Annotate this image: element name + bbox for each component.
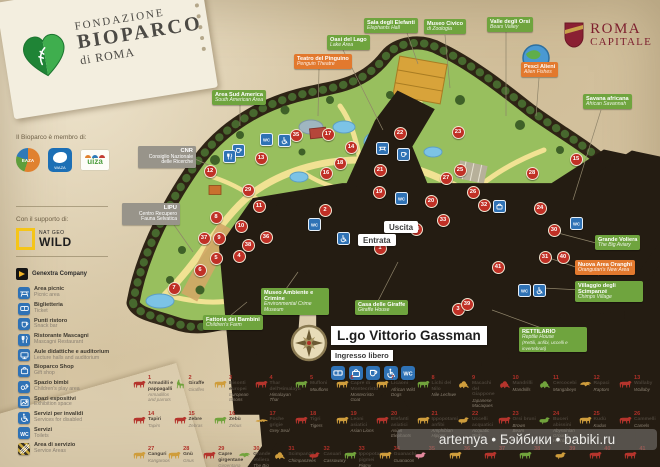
area-label: RETTILARIO Reptile House (Rettili, anfib…: [519, 327, 587, 352]
map-marker: 32: [478, 199, 491, 212]
map-marker: 21: [374, 164, 387, 177]
map-marker: 41: [492, 261, 505, 274]
bioparco-map-page: WC: [0, 0, 660, 467]
animal-icon: [214, 415, 227, 425]
map-marker: 36: [260, 231, 273, 244]
animal-icon: [417, 415, 430, 425]
map-marker: 39: [461, 298, 474, 311]
map-facility-icon: [260, 133, 273, 146]
area-label: Oasi del Lago Lake Area: [327, 35, 370, 50]
animal-icon: [214, 379, 227, 389]
map-facility-icon: [308, 218, 321, 231]
animal-legend-entry: 6 Capre di Montecristo Montecristo Goat: [336, 375, 377, 408]
animal-legend-entry: 5 Mufloni Mouflons: [295, 375, 336, 408]
area-label: Grande Voliera The Big Aviary: [595, 235, 640, 250]
animal-icon: [538, 379, 551, 389]
animal-icon: [624, 450, 637, 460]
animal-legend-entry: 7 Licaoni African Wild Dogs: [376, 375, 417, 408]
animal-icon: [449, 450, 462, 460]
animal-icon: [336, 415, 349, 425]
animal-icon: [255, 415, 268, 425]
map-marker: 12: [204, 165, 217, 178]
map-marker: 28: [526, 167, 539, 180]
animal-legend-entry: 1 Armadilli e pappagalli Armadillos and …: [133, 375, 174, 408]
animal-legend-entry: 32 Casuari Cassowary: [308, 446, 343, 467]
map-facility-icon: [376, 142, 389, 155]
area-label: Casa delle Giraffe Giraffe House: [355, 300, 408, 315]
map-marker: 38: [242, 239, 255, 252]
animal-legend-entry: 27 Canguri Kangaroos: [133, 446, 168, 467]
animal-legend-entry: 11 Cercocebi Mangabeys: [538, 375, 579, 408]
animal-icon: [457, 379, 470, 389]
map-marker: 13: [255, 152, 268, 165]
map-marker: 22: [394, 127, 407, 140]
map-marker: 20: [425, 195, 438, 208]
map-facility-icon: [493, 200, 506, 213]
map-facility-icon: [223, 150, 236, 163]
animal-icon: [498, 379, 511, 389]
animal-legend-entry: 28 Gnù Gnus: [168, 446, 203, 467]
map-marker: 5: [210, 252, 223, 265]
animal-icon: [498, 415, 511, 425]
animal-icon: [538, 415, 551, 425]
map-facility-icon: [533, 284, 546, 297]
area-label: Museo Civico di Zoologia: [424, 19, 466, 34]
animal-icon: [238, 450, 251, 460]
area-label: Pesci Alieni Alien Fishes: [521, 62, 558, 77]
animal-icon: [344, 450, 357, 460]
map-marker: 26: [467, 186, 480, 199]
area-label: Museo Ambiente e Crimine Environmental C…: [261, 288, 329, 315]
animal-icon: [484, 450, 497, 460]
animal-legend-entry: 13 Wallaby Wallaby: [619, 375, 660, 408]
animal-legend-entry: 30 Grande Voliera The Big Aviary: [238, 446, 273, 467]
area-label: Valle degli Orsi Bears Valley: [487, 17, 533, 32]
map-marker: 27: [440, 172, 453, 185]
animal-legend-entry: 29 Capre girgentane Girgentana Goat: [203, 446, 238, 467]
area-label: Sala degli Elefanti Elephants Hall: [364, 18, 418, 33]
map-marker: 16: [320, 167, 333, 180]
animal-icon: [174, 379, 187, 389]
animal-legend-entry: 4 Thar dell'Himalaya Himalayan Thar: [255, 375, 296, 408]
institution-label: LIPU Centro Recupero Fauna Selvatica: [122, 203, 180, 225]
entrance-label: Entrata: [358, 234, 396, 246]
animal-legend-entry: 18 Tigri Tigers: [295, 411, 336, 443]
animal-icon: [579, 379, 592, 389]
animal-legend-entry: 9 Macachi del Giappone Japanese Macaques: [457, 375, 498, 408]
area-label: Area Sud America South American Area: [212, 90, 266, 105]
map-marker: 40: [557, 251, 570, 264]
map-marker: 7: [168, 282, 181, 295]
map-marker: 31: [539, 251, 552, 264]
map-facility-icon: [397, 148, 410, 161]
map-marker: 37: [198, 232, 211, 245]
map-marker: 25: [454, 164, 467, 177]
animal-icon: [336, 379, 349, 389]
animal-legend-entry: 3 Bisonti europei European Bisons: [214, 375, 255, 408]
map-marker: 15: [570, 153, 583, 166]
animal-legend-entry: 33 Ippopotami pigmei Pigmy Hippos: [344, 446, 379, 467]
animal-icon: [379, 450, 392, 460]
map-marker: 4: [233, 250, 246, 263]
animal-legend: 1 Armadilli e pappagalli Armadillos and …: [133, 375, 660, 467]
animal-icon: [133, 415, 146, 425]
animal-icon: [457, 415, 470, 425]
animal-legend-entry: 31 Scimpanzé Chimpanzees: [273, 446, 308, 467]
animal-icon: [295, 415, 308, 425]
animal-legend-entry: 10 Mandrilli Mandrills: [498, 375, 539, 408]
animal-icon: [133, 379, 146, 389]
map-marker: 6: [194, 264, 207, 277]
animal-icon: [619, 379, 632, 389]
exit-label: Uscita: [384, 221, 418, 233]
animal-icon: [168, 450, 181, 460]
map-marker: 9: [213, 232, 226, 245]
map-marker: 23: [452, 126, 465, 139]
animal-icon: [133, 450, 146, 460]
map-marker: 18: [334, 157, 347, 170]
animal-icon: [579, 415, 592, 425]
map-marker: 24: [534, 202, 547, 215]
map-marker: 8: [210, 211, 223, 224]
watermark: artemya • Бэйбики • babiki.ru: [397, 429, 657, 450]
map-marker: 35: [290, 129, 303, 142]
map-marker: 11: [253, 200, 266, 213]
area-label: Villaggio degli Scimpanzé Chimps Village: [575, 281, 643, 302]
animal-legend-entry: 15 Zebre Zebras: [174, 411, 215, 443]
animal-icon: [376, 415, 389, 425]
map-facility-icon: [278, 134, 291, 147]
entrance-sign: L.go Vittorio Gassman Ingresso libero: [331, 326, 491, 380]
animal-icon: [589, 450, 602, 460]
animal-legend-entry: 12 Rapaci Raptors: [579, 375, 620, 408]
animal-icon: [554, 450, 567, 460]
map-marker: 2: [319, 204, 332, 217]
animal-icon: [308, 450, 321, 460]
map-facility-icon: [395, 192, 408, 205]
institution-label: CNR Consiglio Nazionale delle Ricerche: [138, 146, 196, 168]
area-label: Savana africana African Savannah: [583, 94, 632, 109]
area-label: Nuova Area Oranghi Orangutan's New Area: [575, 260, 635, 275]
map-marker: 33: [437, 214, 450, 227]
animal-legend-entry: 16 Zebù Zebus: [214, 411, 255, 443]
map-facility-icon: [570, 217, 583, 230]
map-marker: 30: [548, 224, 561, 237]
area-label: Fattoria dei Bambini Children's Farm: [203, 315, 263, 330]
area-label: Teatro del Pinguino Penguin Theatre: [294, 54, 352, 69]
animal-legend-row-1: 1 Armadilli e pappagalli Armadillos and …: [133, 375, 660, 408]
animal-icon: [255, 379, 268, 389]
animal-icon: [273, 450, 286, 460]
animal-icon: [376, 379, 389, 389]
animal-icon: [174, 415, 187, 425]
animal-icon: [295, 379, 308, 389]
animal-legend-entry: 17 Foche grigie Grey Seal: [255, 411, 296, 443]
map-facility-icon: [518, 284, 531, 297]
map-marker: 29: [242, 184, 255, 197]
map-marker: 14: [345, 141, 358, 154]
animal-legend-entry: 14 Tapiri Tapirs: [133, 411, 174, 443]
animal-legend-entry: 8 Lichi del Nilo Nile Lechwe: [417, 375, 458, 408]
animal-legend-entry: 19 Leoni asiatici Asian Lions: [336, 411, 377, 443]
animal-icon: [519, 450, 532, 460]
animal-icon: [619, 415, 632, 425]
animal-icon: [203, 450, 216, 460]
map-marker: 17: [322, 128, 335, 141]
map-marker: 10: [235, 220, 248, 233]
animal-icon: [414, 450, 427, 460]
map-marker: 19: [373, 186, 386, 199]
map-facility-icon: [337, 232, 350, 245]
entrance-sign-title: L.go Vittorio Gassman: [331, 326, 487, 345]
entrance-sign-subtitle: Ingresso libero: [331, 350, 393, 361]
animal-icon: [417, 379, 430, 389]
animal-legend-entry: 2 Giraffe Giraffes: [174, 375, 215, 408]
